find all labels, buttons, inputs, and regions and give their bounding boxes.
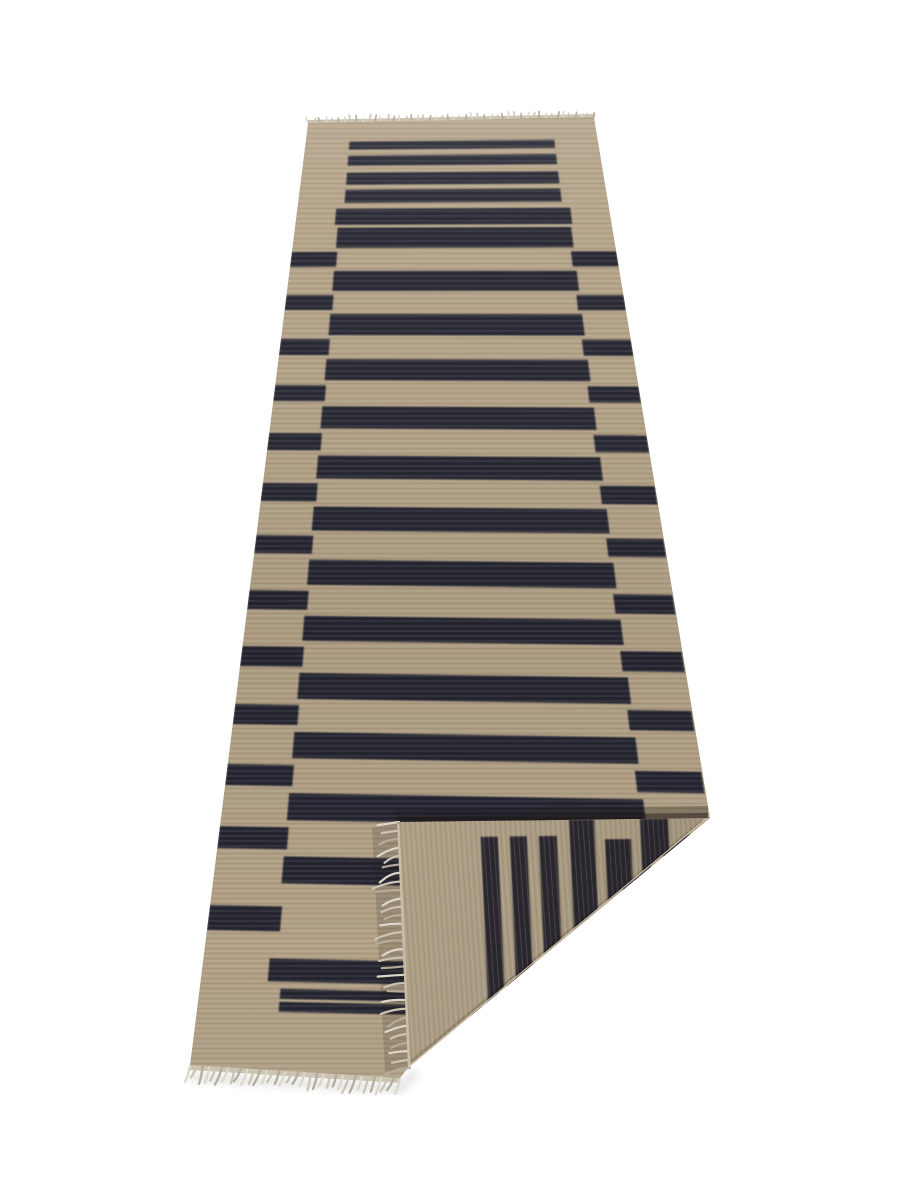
product-photo — [0, 0, 900, 1200]
rug-image — [0, 0, 900, 1200]
